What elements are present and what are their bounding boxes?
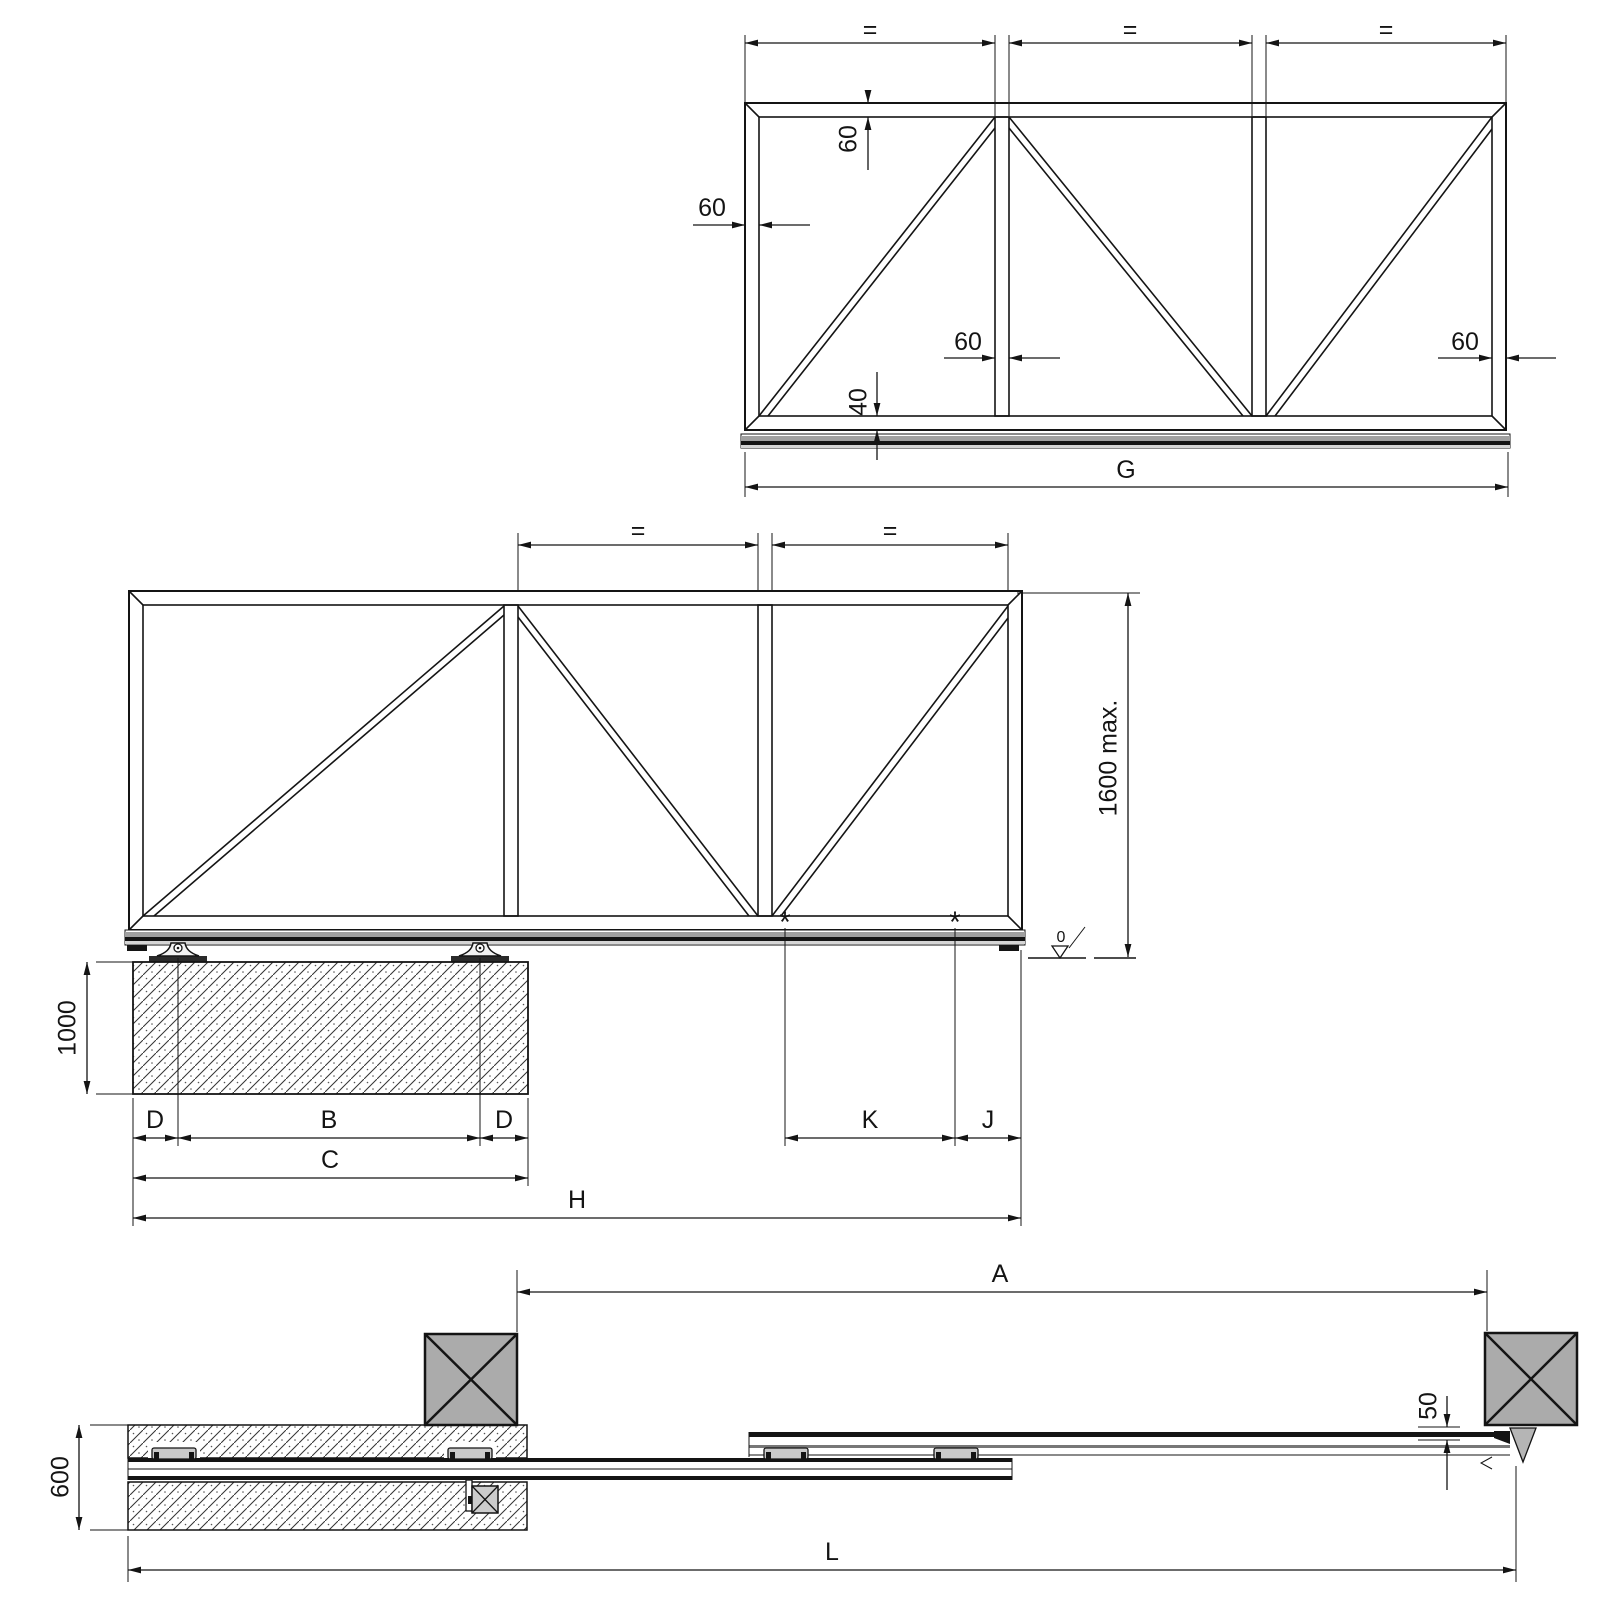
dim-label-left-member: 60 <box>698 194 726 222</box>
bottom-rail-profile <box>741 434 1510 448</box>
elevation-post-2 <box>758 605 772 916</box>
dim-label-gate-height: 1600 max. <box>1095 700 1123 817</box>
dim-label-foundation-width: 600 <box>47 1456 75 1498</box>
elevation-equal-span-dimensions: = = <box>518 517 1008 591</box>
dim-label-front-offset: D <box>495 1106 513 1134</box>
plan-rail-assembly <box>128 1458 1012 1480</box>
dimension-right-member-60: 60 <box>1438 328 1556 358</box>
bottom-view-plan: 600 A L 50 <box>47 1260 1577 1582</box>
rail-clip-4 <box>934 1448 978 1459</box>
dim-label-total-length: L <box>825 1538 839 1566</box>
dimension-overall-width-G: G <box>745 452 1508 497</box>
dim-label-top-member: 60 <box>835 125 863 153</box>
dim-label-eq-span-1: = <box>631 517 646 545</box>
dim-label-equal-3: = <box>1379 16 1394 44</box>
dimension-d-b-d: D B D <box>133 1106 528 1138</box>
dim-label-foundation-length: C <box>321 1146 339 1174</box>
datum-triangle-icon <box>1052 946 1068 958</box>
truss-post-2 <box>1252 117 1266 416</box>
dim-label-nose: J <box>982 1106 995 1134</box>
rail-end-cap-right <box>999 945 1019 951</box>
datum-level-label: 0 <box>1057 929 1066 946</box>
truss-post-1 <box>995 117 1009 416</box>
dimension-k-j: K J <box>785 1106 1021 1138</box>
dim-label-cantilever: K <box>862 1106 879 1134</box>
dim-label-opening: A <box>992 1260 1009 1288</box>
dimension-opening: A <box>517 1260 1487 1292</box>
dim-label-eq-span-2: = <box>883 517 898 545</box>
dimension-total-length: L <box>128 1538 1516 1570</box>
rail-clip-1 <box>152 1448 196 1459</box>
middle-view-gate-elevation: 0 * * = = <box>54 517 1140 1226</box>
plan-post-right <box>1485 1333 1577 1425</box>
dim-label-bottom-member: 40 <box>845 388 873 416</box>
dim-label-post-gap: 50 <box>1415 1392 1443 1420</box>
dim-label-overall-width: G <box>1116 456 1135 484</box>
dim-label-foundation-depth: 1000 <box>54 1000 82 1056</box>
dim-label-post: 60 <box>954 328 982 356</box>
ground-level-datum: 0 <box>1028 927 1136 958</box>
dim-label-equal-1: = <box>863 16 878 44</box>
sliding-gate-drawing: = = = 60 40 60 60 <box>0 0 1620 1600</box>
rail-clip-3 <box>764 1448 808 1459</box>
dimension-foundation-width: 600 <box>47 1425 79 1530</box>
elevation-rail-profile <box>125 930 1025 951</box>
equal-span-dimensions: = = = <box>745 16 1506 116</box>
dim-label-overall-length: H <box>568 1186 586 1214</box>
dim-label-right-member: 60 <box>1451 328 1479 356</box>
elevation-post-1 <box>504 605 518 916</box>
technical-drawing-page: = = = 60 40 60 60 <box>0 0 1620 1600</box>
rail-clip-2 <box>448 1448 492 1459</box>
rail-end-cap-left <box>127 945 147 951</box>
truss-diagonals <box>759 117 1492 416</box>
dimension-overall-length: H <box>133 1186 1021 1218</box>
top-view-gate-panel: = = = 60 40 60 60 <box>693 16 1556 497</box>
dimension-gate-height: 1600 max. <box>1095 593 1128 957</box>
truss-diagonals-elevation <box>143 606 1008 916</box>
dim-label-carriage-spacing: B <box>321 1106 338 1134</box>
plan-post-left <box>425 1334 517 1425</box>
dimension-left-member-60: 60 <box>693 194 810 225</box>
dimension-foundation-length: C <box>133 1146 528 1178</box>
dim-label-rear-offset: D <box>146 1106 164 1134</box>
elevation-truss-frame <box>129 591 1022 930</box>
plan-gate-leaf <box>749 1432 1510 1457</box>
dimension-foundation-depth: 1000 <box>54 962 87 1094</box>
dim-label-equal-2: = <box>1123 16 1138 44</box>
foundation-block <box>133 962 528 1094</box>
